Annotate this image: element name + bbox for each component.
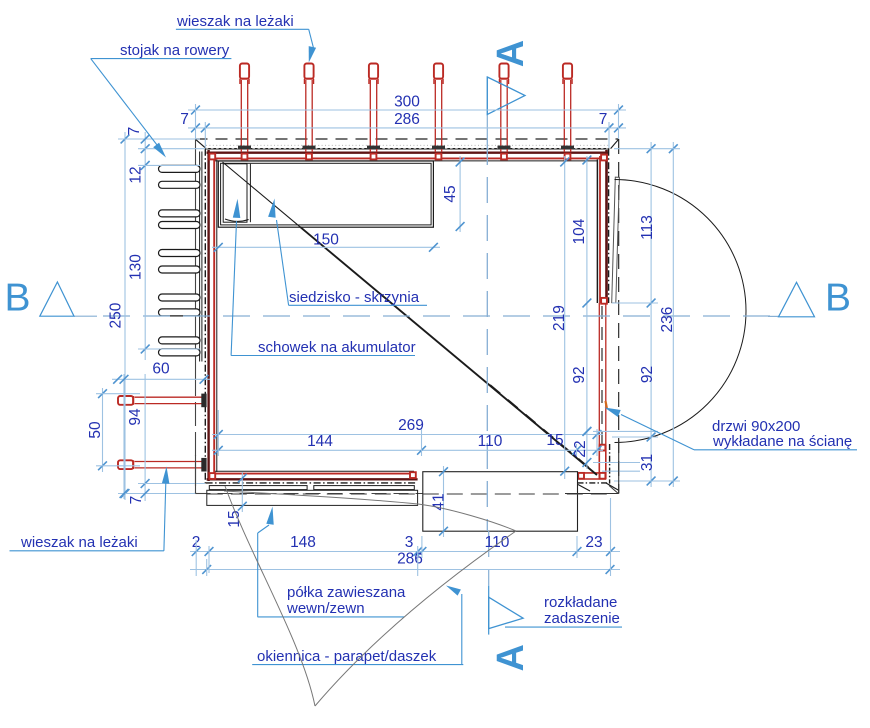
svg-text:94: 94 xyxy=(127,408,144,426)
svg-text:300: 300 xyxy=(394,94,420,111)
svg-text:286: 286 xyxy=(397,551,423,568)
svg-text:219: 219 xyxy=(551,305,568,331)
svg-text:50: 50 xyxy=(87,421,104,439)
svg-text:269: 269 xyxy=(398,417,424,434)
svg-text:3: 3 xyxy=(405,534,414,551)
svg-text:104: 104 xyxy=(571,218,588,244)
svg-text:wieszak na leżaki: wieszak na leżaki xyxy=(20,534,138,551)
svg-text:7: 7 xyxy=(128,496,145,505)
svg-text:110: 110 xyxy=(478,433,503,450)
svg-text:A: A xyxy=(490,40,532,67)
svg-text:92: 92 xyxy=(639,366,656,383)
svg-text:45: 45 xyxy=(442,185,459,202)
svg-text:31: 31 xyxy=(639,454,656,471)
svg-text:22: 22 xyxy=(572,440,589,457)
svg-text:schowek na akumulator: schowek na akumulator xyxy=(258,339,416,356)
svg-text:130: 130 xyxy=(128,254,145,280)
svg-text:150: 150 xyxy=(313,232,339,249)
svg-text:144: 144 xyxy=(307,433,333,450)
svg-text:60: 60 xyxy=(152,361,170,378)
svg-text:23: 23 xyxy=(585,534,602,551)
svg-text:rozkładane: rozkładane xyxy=(544,594,617,611)
svg-text:236: 236 xyxy=(659,307,676,333)
svg-text:wewn/zewn: wewn/zewn xyxy=(286,600,365,617)
svg-text:110: 110 xyxy=(485,534,510,551)
svg-text:siedzisko - skrzynia: siedzisko - skrzynia xyxy=(289,289,420,306)
svg-text:B: B xyxy=(4,277,30,320)
svg-text:148: 148 xyxy=(290,534,316,551)
svg-text:A: A xyxy=(490,644,532,671)
svg-text:półka zawieszana: półka zawieszana xyxy=(287,584,406,601)
svg-text:7: 7 xyxy=(599,111,608,128)
svg-text:92: 92 xyxy=(571,366,588,383)
svg-text:7: 7 xyxy=(126,127,143,136)
svg-text:7: 7 xyxy=(180,111,189,128)
svg-text:286: 286 xyxy=(394,111,420,128)
svg-text:wieszak na leżaki: wieszak na leżaki xyxy=(176,13,294,30)
svg-text:wykładane na ścianę: wykładane na ścianę xyxy=(712,433,852,450)
svg-text:B: B xyxy=(825,277,851,320)
svg-text:stojak na rowery: stojak na rowery xyxy=(120,42,230,59)
svg-text:okiennica - parapet/daszek: okiennica - parapet/daszek xyxy=(257,648,437,665)
svg-text:250: 250 xyxy=(108,302,125,328)
svg-text:113: 113 xyxy=(639,215,656,240)
svg-text:zadaszenie: zadaszenie xyxy=(544,610,620,627)
svg-text:12: 12 xyxy=(128,166,145,183)
svg-text:15: 15 xyxy=(546,432,563,449)
